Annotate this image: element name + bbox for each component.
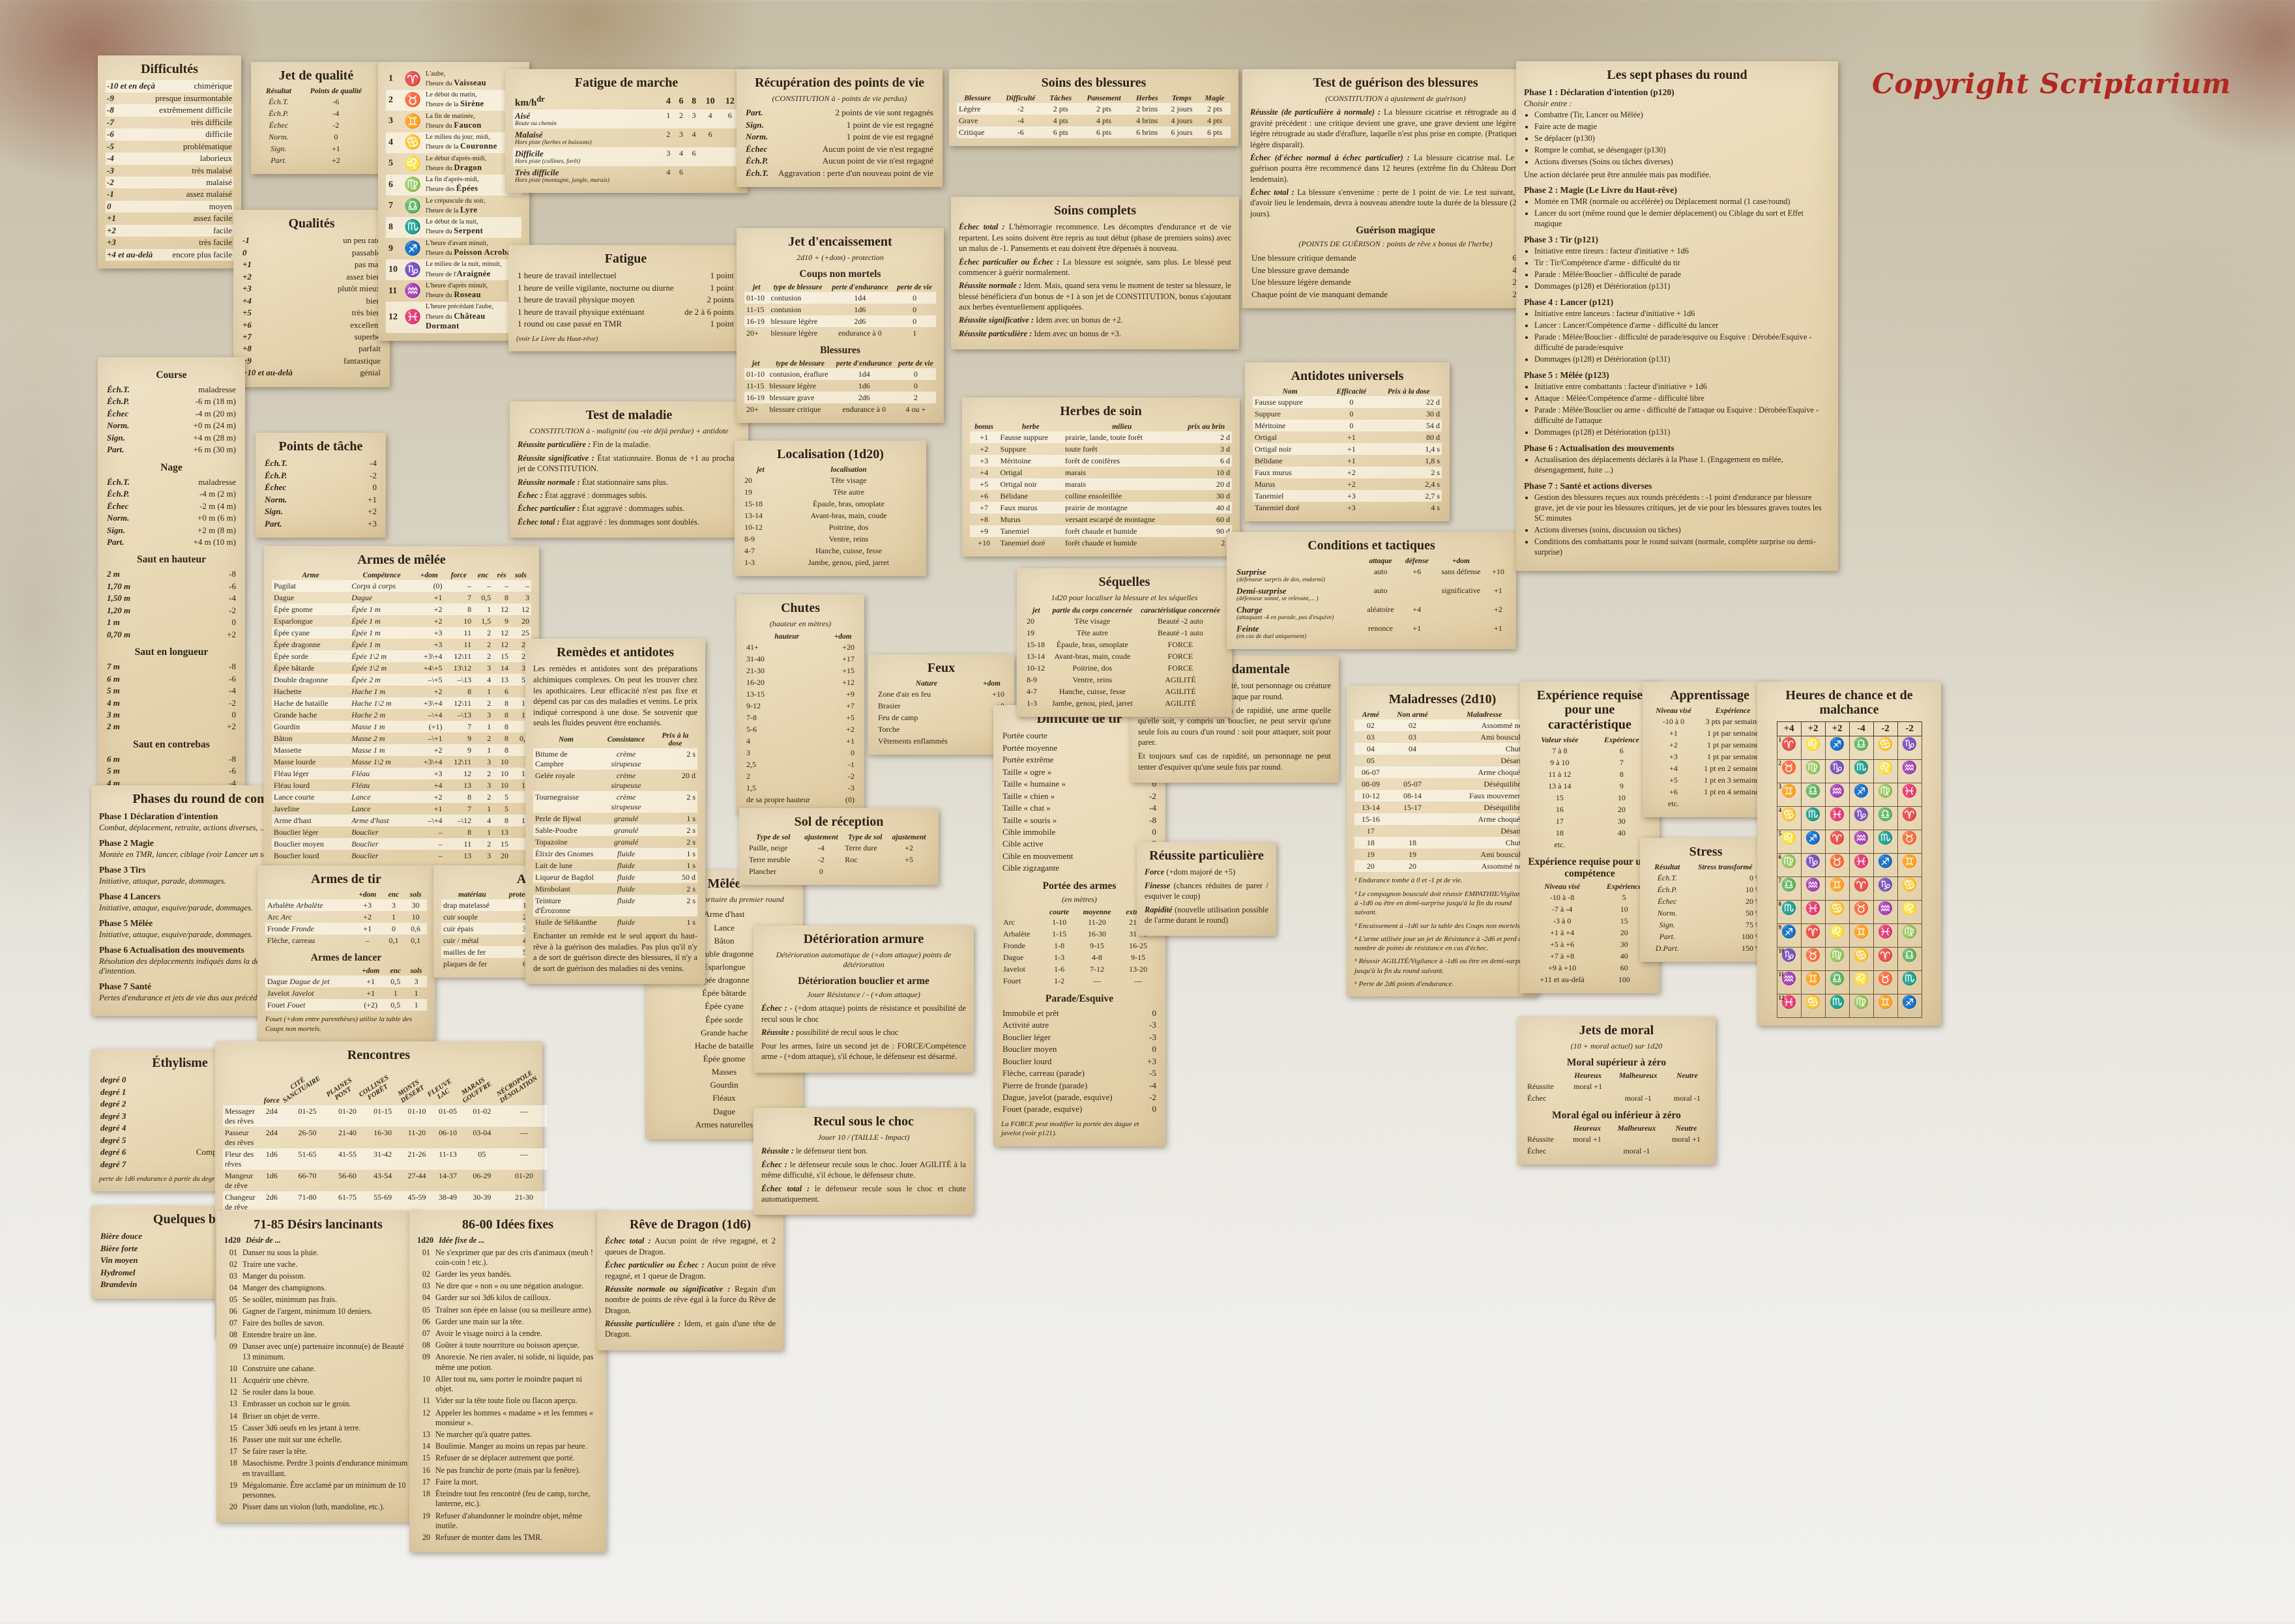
subtitle: Jouer 10 / (TAILLE - Impact) xyxy=(761,1133,966,1142)
phase-bullet: Actions diverses (soins, discussion ou t… xyxy=(1534,525,1830,536)
phase-bullet: Se déplacer (p130) xyxy=(1534,134,1830,144)
heures-chance-malchance: Heures de chance et de malchance+4+2+2-4… xyxy=(1757,682,1941,1026)
cell: 54 d xyxy=(1375,420,1442,431)
remedes-antidotes-title: Remèdes et antidotes xyxy=(533,645,697,660)
column-header: Heureux xyxy=(1566,1071,1610,1080)
hour-cell: ♍ xyxy=(1801,759,1825,783)
table-head: RésultatPoints de qualité xyxy=(259,87,373,96)
data-table: hauteur+dom41++2031-40+1721-30+1516-20+1… xyxy=(744,632,856,805)
table-row: Bouclier moyenBouclier–112156 xyxy=(272,838,531,850)
kv-value: très bien xyxy=(352,307,381,319)
cell: Épée 1 m xyxy=(349,615,414,627)
kv-key: Taille « humaine » xyxy=(1002,778,1066,790)
cell: 15 xyxy=(493,838,510,850)
cell: +3 xyxy=(970,455,998,467)
row-note: Hors piste (herbes et buissons) xyxy=(515,140,660,147)
cell: 2 brins xyxy=(1130,103,1165,115)
kv-value: +2 xyxy=(227,629,236,641)
cell: 10 xyxy=(404,911,427,923)
item-text: Acquérir une chèvre. xyxy=(242,1376,310,1386)
reve-de-dragon-title: Rêve de Dragon (1d6) xyxy=(605,1217,776,1232)
phase-bullet: Dommages (p128) et Détérioration (p131) xyxy=(1534,282,1830,292)
table-row: 06-07Arme choquée ⁴ xyxy=(1354,766,1530,778)
section-heading: Saut en contrebas xyxy=(106,739,237,751)
result-label: Réussite normale : xyxy=(959,281,1021,290)
kv-row: Sign.+4 m (28 m) xyxy=(106,432,237,444)
cell xyxy=(843,865,887,877)
item-text: Danser avec un(e) partenaire inconnu(e) … xyxy=(242,1342,412,1362)
table-row: Demi-surprise(défenseur sonné, se releva… xyxy=(1235,585,1508,603)
row-label: Charge(attaquant -4 en parade, pas d'esq… xyxy=(1235,603,1361,622)
table-head-row: NomEfficacitéPrix à la dose xyxy=(1253,387,1442,396)
row-label: AiséRoute ou chemin xyxy=(513,109,662,128)
row-number: 7 xyxy=(1779,877,1782,884)
cell: -4 xyxy=(799,842,843,854)
cell xyxy=(688,166,701,185)
item-number: 09 xyxy=(224,1342,237,1362)
table-row: Réussitemoral +1moral +1 xyxy=(1525,1133,1708,1145)
cell: Tanemiel xyxy=(998,525,1063,537)
kv-row: Une blessure grave demande4 points xyxy=(1250,265,1541,276)
result-line: Réussite significative : Idem avec un bo… xyxy=(959,315,1231,325)
cell: 1-3 xyxy=(742,557,779,568)
fatigue-title: Fatigue xyxy=(516,252,735,266)
kv-row: 5 m-6 xyxy=(106,765,237,777)
hour-row: 6♍La fin d'après-midi,l'heure des Épées xyxy=(386,175,521,196)
numbered-item: 07Faire des bulles de savon. xyxy=(224,1318,412,1329)
corner-header: km/hdr xyxy=(513,94,662,109)
cell: 4 ou + xyxy=(896,403,936,415)
table-head-row: jettype de blessureperte d'endurancepert… xyxy=(744,359,936,368)
kv-row: Sign.+2 m (8 m) xyxy=(106,525,237,536)
table-head-row: HeureuxMalheureuxNeutre xyxy=(1525,1071,1708,1080)
cell: 2 s xyxy=(1180,537,1232,549)
result-line: Échec total : La blessure s'envenime : p… xyxy=(1250,187,1541,219)
numbered-item: 04Garder sur soi 3d6 kilos de cailloux. xyxy=(417,1293,598,1303)
cell: 10 xyxy=(493,779,510,791)
kv-value: +3 xyxy=(1147,1056,1156,1067)
kv-value: assez malaisé xyxy=(186,188,232,200)
cell: 15-18 xyxy=(1025,639,1048,650)
table-row: Tanemiel+32,7 s xyxy=(1253,490,1442,502)
kv-row: Norm.+0 m (24 m) xyxy=(106,420,237,431)
table-row: 20+blessure critiqueendurance à 04 ou + xyxy=(744,403,936,415)
kv-key: Échec xyxy=(265,482,286,493)
column-header: hauteur xyxy=(744,632,829,641)
hour-glyph-icon: ♓ xyxy=(1830,808,1845,822)
cell: 100 xyxy=(1596,974,1652,985)
desirs-lancinants-title: 71-85 Désirs lancinants xyxy=(224,1217,412,1232)
cell: D.Part. xyxy=(1648,942,1687,954)
cell: +2 xyxy=(970,443,998,455)
fatigue: Fatigue1 heure de travail intellectuel1 … xyxy=(508,245,743,351)
phase-heading: Phase 7 : Santé et actions diverses xyxy=(1524,481,1830,491)
table-row: 13-15+9 xyxy=(744,688,856,700)
table-row: Éch.T.-6 xyxy=(259,96,373,108)
hour-row: 3♊La fin de matinée,l'heure du Faucon xyxy=(386,111,521,132)
item-number: 05 xyxy=(224,1295,237,1305)
cell: Teinture d'Érozonne xyxy=(533,895,599,916)
row-name: Très difficile xyxy=(515,167,660,178)
table-row: AiséRoute ou chemin12346 xyxy=(513,109,740,128)
result-label: Réussite normale ou significative : xyxy=(605,1284,730,1294)
phase-description: Choisir entre : xyxy=(1524,99,1830,109)
table-head-row: forceCITÉ SANCTUAIREPLAINES PONTCOLLINES… xyxy=(223,1066,548,1105)
kv-row: Sign.+2 xyxy=(263,506,378,517)
hour-name: Serpent xyxy=(454,226,483,235)
hour-cell: ♎ xyxy=(1825,970,1849,994)
kv-key: Part. xyxy=(107,536,124,548)
kv-value: -4 m (20 m) xyxy=(196,408,236,420)
table-row: Réussitemoral +1 xyxy=(1525,1080,1708,1092)
kv-value: -4 xyxy=(1149,1080,1156,1092)
kv-value: génial xyxy=(360,367,381,379)
table-row: -10 à 03 pts par semaine xyxy=(1650,716,1769,727)
kv-row: Pierre de fronde (parade)-4 xyxy=(1001,1080,1158,1092)
kv-value: Aggravation : perte d'un nouveau point d… xyxy=(778,167,933,179)
numbered-item: 16Ne pas franchir de porte (mais par la … xyxy=(417,1466,598,1476)
table-row: Arc1-1011-2021-50 xyxy=(1001,917,1158,929)
data-table: jetpartie du corps concernéecaractéristi… xyxy=(1025,606,1224,709)
result-label: Échec : xyxy=(518,491,543,500)
cell: +1 xyxy=(970,431,998,443)
cell: +5 xyxy=(887,854,931,865)
cell: contusion, éraflure xyxy=(768,368,833,380)
kv-value: facile xyxy=(213,225,232,237)
cell: prairie de montagne xyxy=(1063,502,1180,514)
cell: 2d6 xyxy=(260,1191,284,1213)
cell: Masse 1 m xyxy=(349,744,414,756)
kv-row: Éch.T.maladresse xyxy=(106,384,237,396)
hour-glyph-icon: ♊ xyxy=(1781,785,1797,798)
kv-key: Portée extrême xyxy=(1002,754,1053,766)
hour-glyph-icon: ♋ xyxy=(1902,878,1918,892)
cell: 19 xyxy=(1354,848,1387,860)
row-label: Arc Arc xyxy=(265,911,352,923)
cell: 20 xyxy=(1025,615,1048,627)
cell: Hache de bataille xyxy=(272,697,349,709)
numbered-list-header: 1d20Idée fixe de ... xyxy=(417,1236,598,1246)
cell: crème sirupeuse xyxy=(599,770,653,791)
grid-row: 4♋♏♓♑♎♈ xyxy=(1777,806,1922,830)
cell: renonce xyxy=(1361,622,1399,641)
cell: -6 xyxy=(998,126,1043,138)
column-header-label: COLLINES FORÊT xyxy=(358,1075,394,1105)
phase-bullet: Actions diverses (Soins ou tâches divers… xyxy=(1534,157,1830,167)
cell: 15-16 xyxy=(1354,813,1387,825)
cell: drap matelassé xyxy=(441,899,503,911)
cell: Méritoine xyxy=(998,455,1063,467)
cell xyxy=(1610,1080,1667,1092)
kv-value: 2 points xyxy=(707,294,734,306)
kv-value: chimérique xyxy=(194,80,232,92)
hour-glyph-icon: ♋ xyxy=(1781,808,1797,822)
hour-glyph-icon: ♉ xyxy=(1902,832,1918,845)
kv-value: difficile xyxy=(205,128,232,140)
phase-block: Phase 2 : Magie (Le Livre du Haut-rêve)M… xyxy=(1524,185,1830,229)
cell: Épée 1\2 m xyxy=(349,662,414,674)
item-text: Garder les yeux bandés. xyxy=(435,1269,512,1280)
numbered-item: 08Entendre braire un âne. xyxy=(224,1330,412,1341)
cell: — xyxy=(1075,976,1119,987)
cell: 10 xyxy=(445,615,474,627)
kv-key: Éch.P. xyxy=(746,155,768,167)
cell: Norm. xyxy=(259,131,299,143)
column-header: Magie xyxy=(1199,94,1231,103)
kv-key: 1,20 m xyxy=(107,605,130,616)
column-header: Nom xyxy=(533,731,599,748)
hour-cell: 9♐ xyxy=(1777,923,1801,947)
column-header: rés xyxy=(493,571,510,580)
hour-number: 12 xyxy=(388,312,400,323)
cell: Chute ³ xyxy=(1438,743,1530,755)
cell: 10 xyxy=(493,756,510,768)
table-row: Lance courteLance+28253 xyxy=(272,791,531,803)
table-row: Épée cyaneÉpée 1 m+31121225 xyxy=(272,627,531,639)
cell: 8 xyxy=(493,732,510,744)
cell: -3 xyxy=(829,782,856,794)
kv-value: 1 point xyxy=(710,270,734,282)
cell: Masse 2 m xyxy=(349,732,414,744)
table-row: MalaiséHors piste (herbes et buissons)23… xyxy=(513,128,740,147)
cell: toute forêt xyxy=(1063,443,1180,455)
table-head: Niveau viséExpérience xyxy=(1528,882,1652,892)
kv-row: 0moyen xyxy=(106,201,233,212)
cell: +2 xyxy=(414,744,445,756)
antidotes-universels: Antidotes universelsNomEfficacitéPrix à … xyxy=(1245,362,1450,521)
hour-glyph-icon: ♍ xyxy=(1854,996,1869,1009)
hour-glyph-icon: ♓ xyxy=(1902,785,1918,798)
cell: Gelée royale xyxy=(533,770,599,791)
cell: 1d4 xyxy=(833,368,896,380)
kv-value: -8 xyxy=(229,753,236,765)
cell: 17 xyxy=(1528,815,1592,827)
cell: granulé xyxy=(599,813,653,824)
cell: 1 xyxy=(473,721,493,732)
cell: 31-40 xyxy=(744,653,829,665)
hour-label: L'aube,l'heure du Vaisseau xyxy=(426,70,486,89)
table-head: Nature+dom xyxy=(876,679,1006,688)
numbered-item: 16Passer une nuit sur une échelle. xyxy=(224,1435,412,1445)
cell: 3 xyxy=(675,128,688,147)
cell: +12 xyxy=(829,676,856,688)
table-head: attaquedéfense+dom xyxy=(1235,557,1508,566)
hour-label: La fin de matinée,l'heure du Faucon xyxy=(426,113,482,131)
cell: 4 pts xyxy=(1199,115,1231,126)
table-body: 20Tête visage19Tête autre15-18Épaule, br… xyxy=(742,474,918,568)
kv-row: +4bien xyxy=(241,295,382,307)
hour-glyph-icon: ♒ xyxy=(404,283,421,299)
hour-row: 7♎Le crépuscule du soir,l'heure de la Ly… xyxy=(386,196,521,217)
hour-glyph-icon: ♎ xyxy=(1805,785,1821,798)
column-header: perte d'endurance xyxy=(827,283,893,292)
cell: Bouclier xyxy=(349,826,414,838)
chance-grid: +4+2+2-4-2-21♈♌♐♎♋♑2♉♍♑♏♌♒3♊♎♒♐♍♓4♋♏♓♑♎♈… xyxy=(1777,721,1922,1018)
hour-cell: ♏ xyxy=(1801,806,1825,830)
hour-number: 5 xyxy=(388,158,400,169)
cell xyxy=(701,147,720,166)
table-row: Norm.50 % xyxy=(1648,907,1764,919)
column-header: Type de sol xyxy=(843,833,887,842)
phase-bullet: Faire acte de magie xyxy=(1534,122,1830,132)
cell: Épée 1 m xyxy=(349,603,414,615)
sol-de-reception: Sol de réceptionType de solajustementTyp… xyxy=(739,808,939,885)
jet-de-qualite: Jet de qualitéRésultatPoints de qualitéÉ… xyxy=(251,62,381,174)
data-table: Valeur viséeExpérience7 à 869 à 10711 à … xyxy=(1528,736,1652,850)
column-header xyxy=(1001,908,1044,917)
table-body: 01-10contusion, éraflure1d4011-15blessur… xyxy=(744,368,936,415)
cell: 13 à 14 xyxy=(1528,780,1592,792)
cell: 10-12 xyxy=(1354,790,1387,802)
kv-row: -1assez malaisé xyxy=(106,188,233,200)
kv-key: 0 xyxy=(242,247,247,259)
points-de-tache: Points de tâcheÉch.T.-4Éch.P.-2Échec0Nor… xyxy=(256,433,386,538)
data-table: RésultatPoints de qualitéÉch.T.-6Éch.P.-… xyxy=(259,87,373,166)
cell: 8 xyxy=(493,721,510,732)
cell: Tête visage xyxy=(779,474,918,486)
cell: +1 xyxy=(356,987,385,999)
item-text: Aller tout nu, sans porter le moindre pa… xyxy=(435,1374,598,1395)
item-number: 16 xyxy=(224,1435,237,1445)
section-heading: Portée des armes xyxy=(1001,880,1158,892)
cell: 13-15 xyxy=(744,688,829,700)
row-note: (défenseur sonné, se relevant,... ) xyxy=(1236,596,1359,603)
cell: -2 xyxy=(299,119,373,131)
column-header: Arme xyxy=(272,571,349,580)
cell: Déséquilibré ⁵ xyxy=(1438,802,1530,813)
kv-key: -1 xyxy=(107,188,114,200)
cell: +8 xyxy=(970,514,998,525)
table-row: Fausse suppure022 d xyxy=(1253,396,1442,408)
cell: Arme choquée ⁴ xyxy=(1438,766,1530,778)
hour-cell: ♏ xyxy=(1873,830,1897,853)
hour-cell: ♏ xyxy=(1897,970,1922,994)
cell: Jambe, genou, pied, jarret xyxy=(1048,697,1137,709)
cell xyxy=(1566,1145,1609,1157)
table-head-row: hauteur+dom xyxy=(744,632,856,641)
item-text: Ne s'exprimer que par des cris d'animaux… xyxy=(435,1248,598,1268)
cell: 19 xyxy=(1387,848,1438,860)
cell: 13-14 xyxy=(1354,802,1387,813)
phase-bullets: Gestion des blessures reçues aux rounds … xyxy=(1524,493,1830,558)
kv-value: -2 xyxy=(229,605,236,616)
kv-key: Bière forte xyxy=(100,1243,138,1254)
numbered-item: 06Gagner de l'argent, minimum 10 deniers… xyxy=(224,1307,412,1317)
table-body: Légère-22 pts2 pts2 brins2 jours2 ptsGra… xyxy=(957,103,1231,138)
row-label: DifficileHors piste (collines, forêt) xyxy=(513,147,662,166)
cell: Bouclier xyxy=(349,838,414,850)
result-line: Échec particulier ou Échec : La blessure… xyxy=(959,257,1231,278)
hour-glyph-icon: ♋ xyxy=(1830,902,1845,916)
kv-row: Part.2 points de vie sont regagnés xyxy=(744,107,935,119)
hour-cell: ♊ xyxy=(1873,994,1897,1017)
hour-prefix: l'heure de la xyxy=(426,207,460,214)
stress: StressRésultatStress transforméÉch.T.0 %… xyxy=(1640,838,1772,962)
cell: Déséquilibré ⁵ xyxy=(1438,778,1530,790)
hour-glyph-icon: ♉ xyxy=(1854,902,1869,916)
row-label: Feinte(en cas de duel uniquement) xyxy=(1235,622,1361,641)
row-name: Demi-surprise xyxy=(1236,586,1359,596)
cell: 45-59 xyxy=(402,1191,432,1213)
cell: 8 xyxy=(493,592,510,603)
cell: 18 xyxy=(1528,827,1592,839)
table-row: Tournegraissecrème sirupeuse2 s xyxy=(533,791,697,813)
numbered-item: 18Éteindre tout feu rencontré (feu de ca… xyxy=(417,1489,598,1509)
phase-bullets: Initiative entre lanceurs : facteur d'in… xyxy=(1524,309,1830,365)
row-note: (en cas de duel uniquement) xyxy=(1236,634,1359,641)
cell: 20 xyxy=(493,850,510,862)
kv-value: -4 xyxy=(370,457,377,469)
item-text: Masochisme. Perdre 3 points d'endurance … xyxy=(242,1458,412,1479)
kv-key: Éch.T. xyxy=(746,167,768,179)
table-row: Hache de batailleHache 1\2 m+3\+412\1128… xyxy=(272,697,531,709)
cell: Zone d'air en feu xyxy=(876,688,977,700)
result-label: Échec particulier : xyxy=(518,504,580,513)
row-name: Surprise xyxy=(1236,567,1359,577)
hour-glyph-icon: ♒ xyxy=(1854,832,1869,845)
kv-row: -2malaisé xyxy=(106,177,233,188)
table-row: Liqueur de Bagdolfluide50 d xyxy=(533,871,697,883)
cell xyxy=(1387,766,1438,778)
table-row: +10Tanemiel doréforêt chaude et humide2 … xyxy=(970,537,1232,549)
table-row: +21 pt par semaine xyxy=(1650,739,1769,751)
cell: 4 s xyxy=(1375,502,1442,514)
table-head-row: ArmeCompétence+domforceencréssols xyxy=(272,571,531,580)
hour-prefix: l'heure du xyxy=(426,292,454,299)
item-number: 13 xyxy=(417,1430,430,1440)
result-text: possibilité de recul sous le choc xyxy=(796,1028,898,1037)
cell: -2 xyxy=(829,770,856,782)
cell: 12 xyxy=(493,603,510,615)
kv-row: Éch.P.-6 m (18 m) xyxy=(106,396,237,407)
cell: +6 xyxy=(1650,786,1697,798)
column-header-label: CITÉ SANCTUAIRE xyxy=(278,1069,322,1105)
hour-glyph-icon: ♒ xyxy=(1902,761,1918,775)
data-table: jettype de blessureperte d'endurancepert… xyxy=(744,359,936,415)
cell: +7 xyxy=(970,502,998,514)
hour-glyph-icon: ♐ xyxy=(404,240,421,257)
item-text: Briser un objet de verre. xyxy=(242,1412,319,1422)
result-label: Réussite : xyxy=(761,1028,794,1037)
cell: granulé xyxy=(599,824,653,836)
cell: Critique xyxy=(957,126,998,138)
cell: 12\11 xyxy=(445,697,474,709)
table-body: Paille, neige-4Terre dure+2Terre meuble-… xyxy=(747,842,931,877)
kv-key: +1 xyxy=(107,212,116,224)
column-header: PLAINES PONT xyxy=(331,1066,364,1105)
cell: Hanche, cuisse, fesse xyxy=(779,545,918,557)
hour-name: Faucon xyxy=(454,121,481,130)
cell: 16-20 xyxy=(744,676,829,688)
cell: 4 xyxy=(688,128,701,147)
column-header: enc xyxy=(385,966,405,976)
table-body: Réussitemoral +1moral +1Échecmoral -1 xyxy=(1525,1133,1708,1157)
column-header: type de blessure xyxy=(769,283,827,292)
table-row: Éch.P.10 % xyxy=(1648,884,1764,895)
kv-row: 1 heure de veille vigilante, nocturne ou… xyxy=(516,282,735,294)
table-body: AiséRoute ou chemin12346MalaiséHors pist… xyxy=(513,109,740,185)
item-number: 01 xyxy=(417,1248,430,1268)
result-text: - (+dom attaque) points de résistance et… xyxy=(761,1004,966,1023)
cell: 01-10 xyxy=(402,1105,432,1127)
cell: +5 à +6 xyxy=(1528,938,1596,950)
cell xyxy=(887,865,931,877)
kv-key: Norm. xyxy=(265,494,287,506)
kv-key: degré 5 xyxy=(100,1135,126,1146)
cell: 0,5 xyxy=(385,976,405,987)
kv-key: -7 xyxy=(107,117,114,128)
recuperation-points-de-vie: Récupération des points de vie(CONSTITUT… xyxy=(737,69,943,187)
